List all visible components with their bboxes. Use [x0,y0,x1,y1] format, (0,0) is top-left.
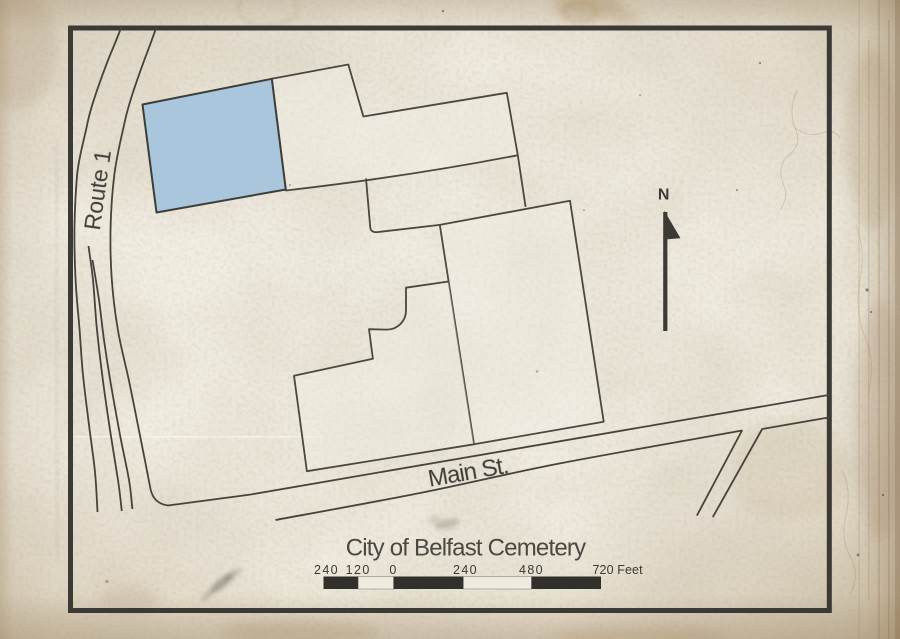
svg-text:0: 0 [389,563,397,577]
svg-text:480: 480 [519,563,544,577]
svg-text:720 Feet: 720 Feet [593,563,644,577]
svg-text:120: 120 [346,563,371,577]
svg-text:N: N [658,187,670,204]
svg-text:City of Belfast Cemetery: City of Belfast Cemetery [346,535,586,562]
svg-text:240: 240 [314,563,339,577]
svg-text:240: 240 [453,563,478,577]
